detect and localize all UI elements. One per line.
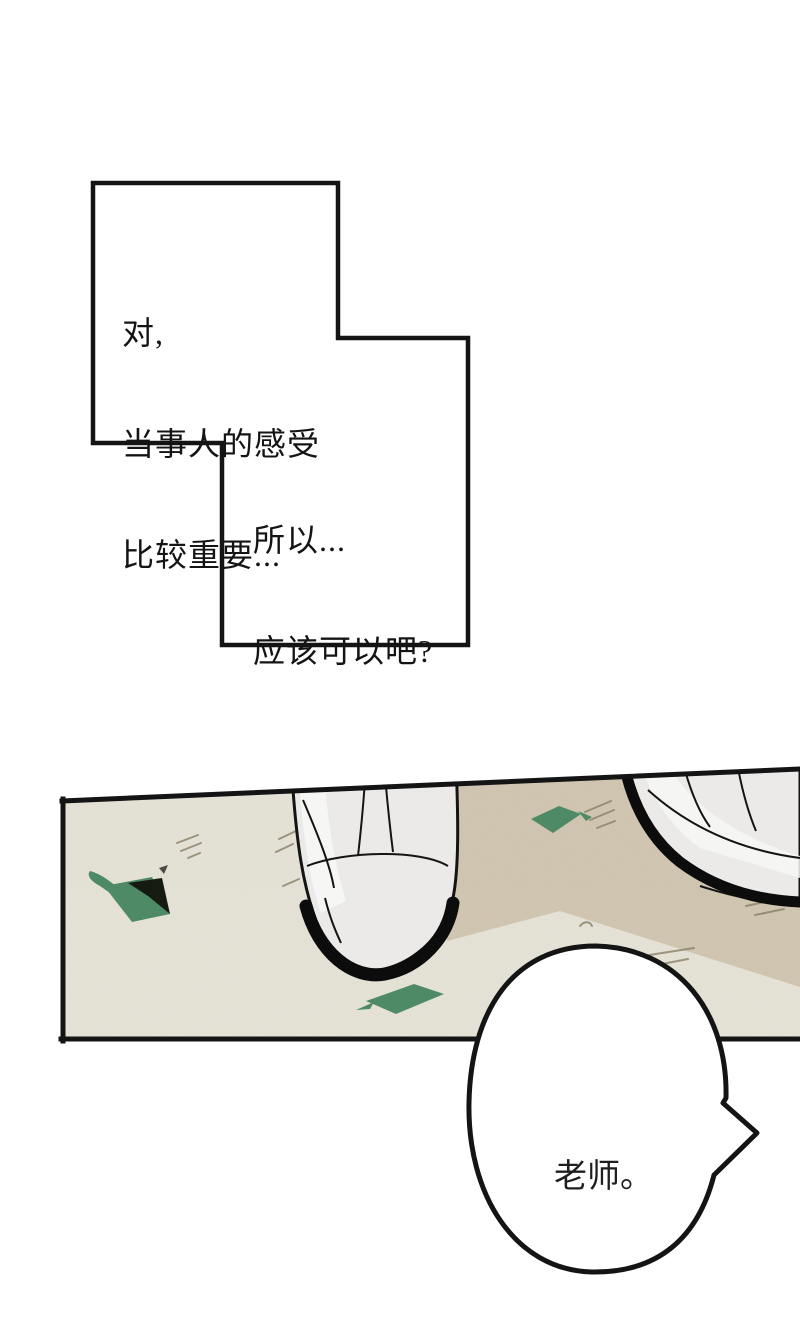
bubble2-line1: 所以... (253, 522, 433, 559)
speech-bubble-2-text: 所以... 应该可以吧? (253, 448, 433, 744)
bubble3-line1: 老师。 (554, 1158, 653, 1194)
speech-bubble-3-text: 老师。 (554, 1086, 653, 1266)
bubble2-line2: 应该可以吧? (253, 633, 433, 670)
comic-page: 对, 当事人的感受 比较重要... 所以... 应该可以吧? 老师。 (0, 0, 800, 1319)
bubble1-line1: 对, (122, 315, 320, 352)
